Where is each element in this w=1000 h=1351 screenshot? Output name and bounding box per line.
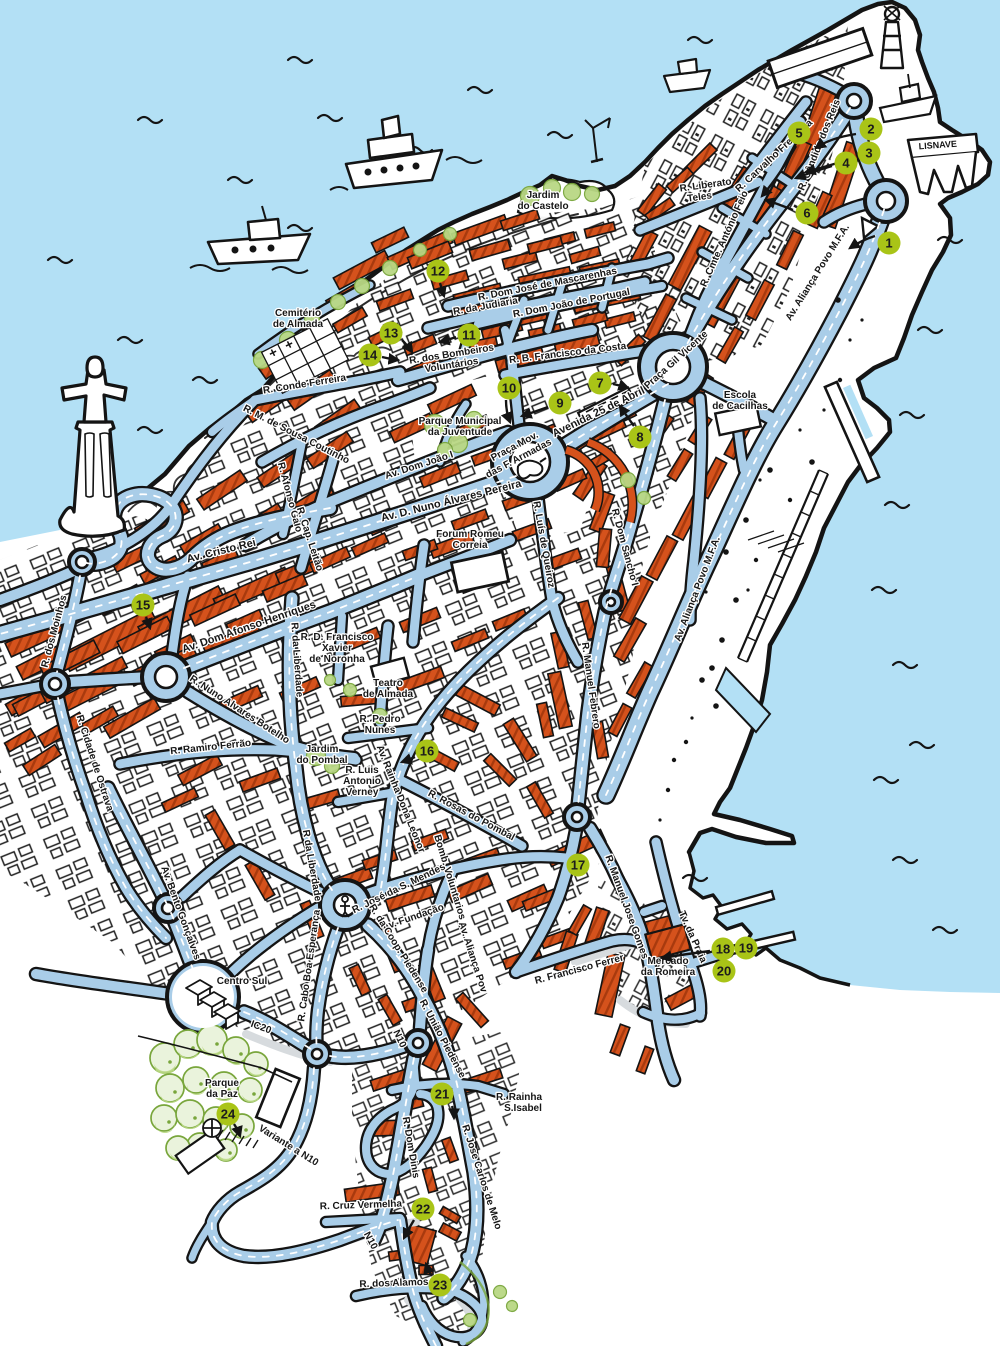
svg-text:R. Rainha: R. Rainha xyxy=(496,1092,543,1103)
svg-text:22: 22 xyxy=(416,1202,430,1217)
svg-text:15: 15 xyxy=(136,598,150,613)
svg-text:da Paz: da Paz xyxy=(206,1089,238,1100)
svg-text:20: 20 xyxy=(717,964,731,979)
svg-text:9: 9 xyxy=(556,396,563,411)
svg-text:21: 21 xyxy=(435,1087,449,1102)
svg-text:11: 11 xyxy=(462,328,476,343)
svg-text:Correia: Correia xyxy=(452,540,487,551)
svg-text:de Noronha: de Noronha xyxy=(309,654,365,665)
svg-text:13: 13 xyxy=(384,326,398,341)
svg-text:Cemitério: Cemitério xyxy=(275,308,321,319)
svg-text:de Almada: de Almada xyxy=(363,689,414,700)
svg-text:Teatro: Teatro xyxy=(373,678,403,689)
svg-text:do Castelo: do Castelo xyxy=(517,201,568,212)
svg-text:Nunes: Nunes xyxy=(365,725,396,736)
svg-text:19: 19 xyxy=(739,941,753,956)
svg-text:do Pombal: do Pombal xyxy=(296,755,347,766)
svg-text:Jardim: Jardim xyxy=(527,190,560,201)
svg-text:Centro Sul: Centro Sul xyxy=(217,976,268,987)
svg-text:16: 16 xyxy=(420,744,434,759)
svg-text:Antonio: Antonio xyxy=(343,776,381,787)
svg-text:4: 4 xyxy=(842,156,850,171)
svg-text:Verney: Verney xyxy=(346,787,379,798)
svg-text:10: 10 xyxy=(502,381,516,396)
svg-text:14: 14 xyxy=(363,348,378,363)
svg-text:5: 5 xyxy=(795,126,802,141)
svg-text:Escola: Escola xyxy=(724,390,757,401)
svg-text:1: 1 xyxy=(885,236,892,251)
svg-text:da Romeira: da Romeira xyxy=(641,967,696,978)
svg-text:18: 18 xyxy=(716,942,730,957)
svg-text:Parque Municipal: Parque Municipal xyxy=(419,416,502,427)
svg-text:12: 12 xyxy=(431,264,445,279)
svg-text:R. D. Francisco: R. D. Francisco xyxy=(301,632,374,643)
svg-text:8: 8 xyxy=(636,430,643,445)
svg-text:da Juventude: da Juventude xyxy=(428,427,493,438)
svg-text:Jardim: Jardim xyxy=(306,744,339,755)
svg-text:de Almada: de Almada xyxy=(273,319,324,330)
svg-text:2: 2 xyxy=(867,122,874,137)
svg-text:S.Isabel: S.Isabel xyxy=(504,1103,542,1114)
svg-text:R. Luis: R. Luis xyxy=(345,765,379,776)
svg-text:3: 3 xyxy=(865,146,872,161)
svg-text:de Cacilhas: de Cacilhas xyxy=(712,401,768,412)
svg-text:24: 24 xyxy=(221,1107,236,1122)
svg-text:Parque: Parque xyxy=(205,1078,239,1089)
svg-text:6: 6 xyxy=(803,206,810,221)
svg-text:7: 7 xyxy=(596,376,603,391)
svg-text:17: 17 xyxy=(571,858,585,873)
svg-text:R. Pedro: R. Pedro xyxy=(359,714,400,725)
svg-text:Xavier: Xavier xyxy=(322,643,352,654)
svg-text:Forum Romeu: Forum Romeu xyxy=(436,529,504,540)
svg-text:23: 23 xyxy=(433,1278,447,1293)
